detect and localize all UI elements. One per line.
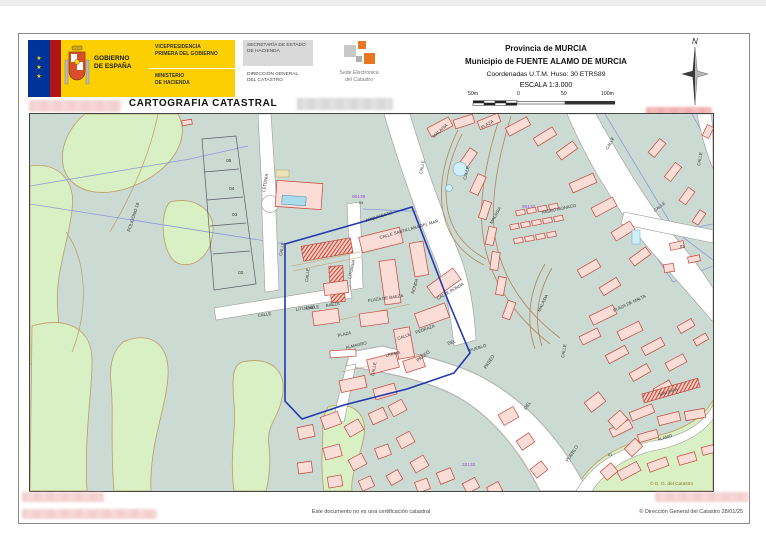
vicepresidencia-label: VICEPRESIDENCIA PRIMERA DEL GOBIERNO [149,40,235,69]
map-label: © D. G. del Catastro [650,480,694,487]
direccion-general-catastro-label: DIRECCIÓN GENERAL DEL CATASTRO [243,66,313,84]
page-edge [0,0,766,6]
disclaimer-text: Este documento no es una certificación c… [231,509,511,515]
ministry-banner: GOBIERNO DE ESPAÑA VICEPRESIDENCIA PRIME… [61,40,235,97]
map-canvas: POLIGONO 1905040302LETONIACALLELITUANIAL… [30,114,713,491]
department-labels: VICEPRESIDENCIA PRIMERA DEL GOBIERNO MIN… [149,40,235,97]
map-label: 32132 [462,462,476,468]
copyright-text: © Dirección General del Catastro 28/01/2… [639,509,743,515]
secretaria-estado-label: SECRETARÍA DE ESTADO DE HACIENDA [243,40,313,66]
spain-coat-of-arms-icon [64,44,90,92]
pool-right [632,230,640,244]
redacted-reference-right [297,98,393,110]
secretaria-column: SECRETARÍA DE ESTADO DE HACIENDA DIRECCI… [243,40,313,97]
redacted-reference-bottom [22,509,157,519]
building [327,475,343,488]
redacted-footer-right [655,492,749,502]
small-structure [276,170,289,177]
cadastral-document-page: ★ ★ ★ GOBIERNO DE ESPAÑA VICEPRESIDENCIA… [0,0,766,556]
scale-tick-50: 50 [561,91,567,97]
map-label: 90137 [522,204,536,210]
scale-bar: 50m 0 50 100m [471,91,621,107]
map-title-block: Provincia de MURCIA Municipio de FUENTE … [440,40,652,107]
map-label: 05 [226,158,232,164]
document-border: ★ ★ ★ GOBIERNO DE ESPAÑA VICEPRESIDENCIA… [18,33,750,524]
municipality-label: Municipio de FUENTE ALAMO DE MURCIA [440,57,652,66]
north-label: N [692,37,698,46]
ministerio-hacienda-label: MINISTERIO DE HACIENDA [149,69,235,97]
gobierno-de-espana-label: GOBIERNO DE ESPAÑA [94,55,131,71]
scale-bar-graphic [471,99,621,107]
redacted-footer-left [22,492,104,502]
map-label: 61 [608,453,612,457]
scale-label: ESCALA 1:3.000 [440,82,652,89]
scale-tick-50m-left: 50m [468,91,478,97]
swimming-pool [282,195,307,206]
building [330,349,356,358]
north-compass: N [679,36,711,108]
map-label: 90139 [352,194,366,200]
spain-flag-stripe [50,40,61,97]
map-label: 03 [232,212,238,218]
cadastral-map: POLIGONO 1905040302LETONIACALLELITUANIAL… [29,113,714,492]
sede-electronica-logo: Sede Electrónica del Catastro [327,40,391,97]
government-logo-block: ★ ★ ★ GOBIERNO DE ESPAÑA VICEPRESIDENCIA… [28,40,391,97]
map-label: 01 [680,244,685,249]
eu-flag-stars-icon: ★ ★ ★ [28,40,50,97]
pond-small [446,185,453,192]
map-label: 09 [359,201,363,205]
sede-squares-icon [342,40,376,68]
map-label: 02 [238,270,244,276]
scale-tick-0: 0 [517,91,520,97]
building [297,461,312,474]
map-label: 04 [229,186,235,192]
scale-tick-100m: 100m [601,91,614,97]
sede-electronica-label: Sede Electrónica del Catastro [339,70,378,84]
province-label: Provincia de MURCIA [440,44,652,53]
building [663,263,674,272]
redacted-reference-left [29,100,121,112]
coordinates-label: Coordenadas U.T.M. Huso: 30 ETRS89 [440,71,652,78]
